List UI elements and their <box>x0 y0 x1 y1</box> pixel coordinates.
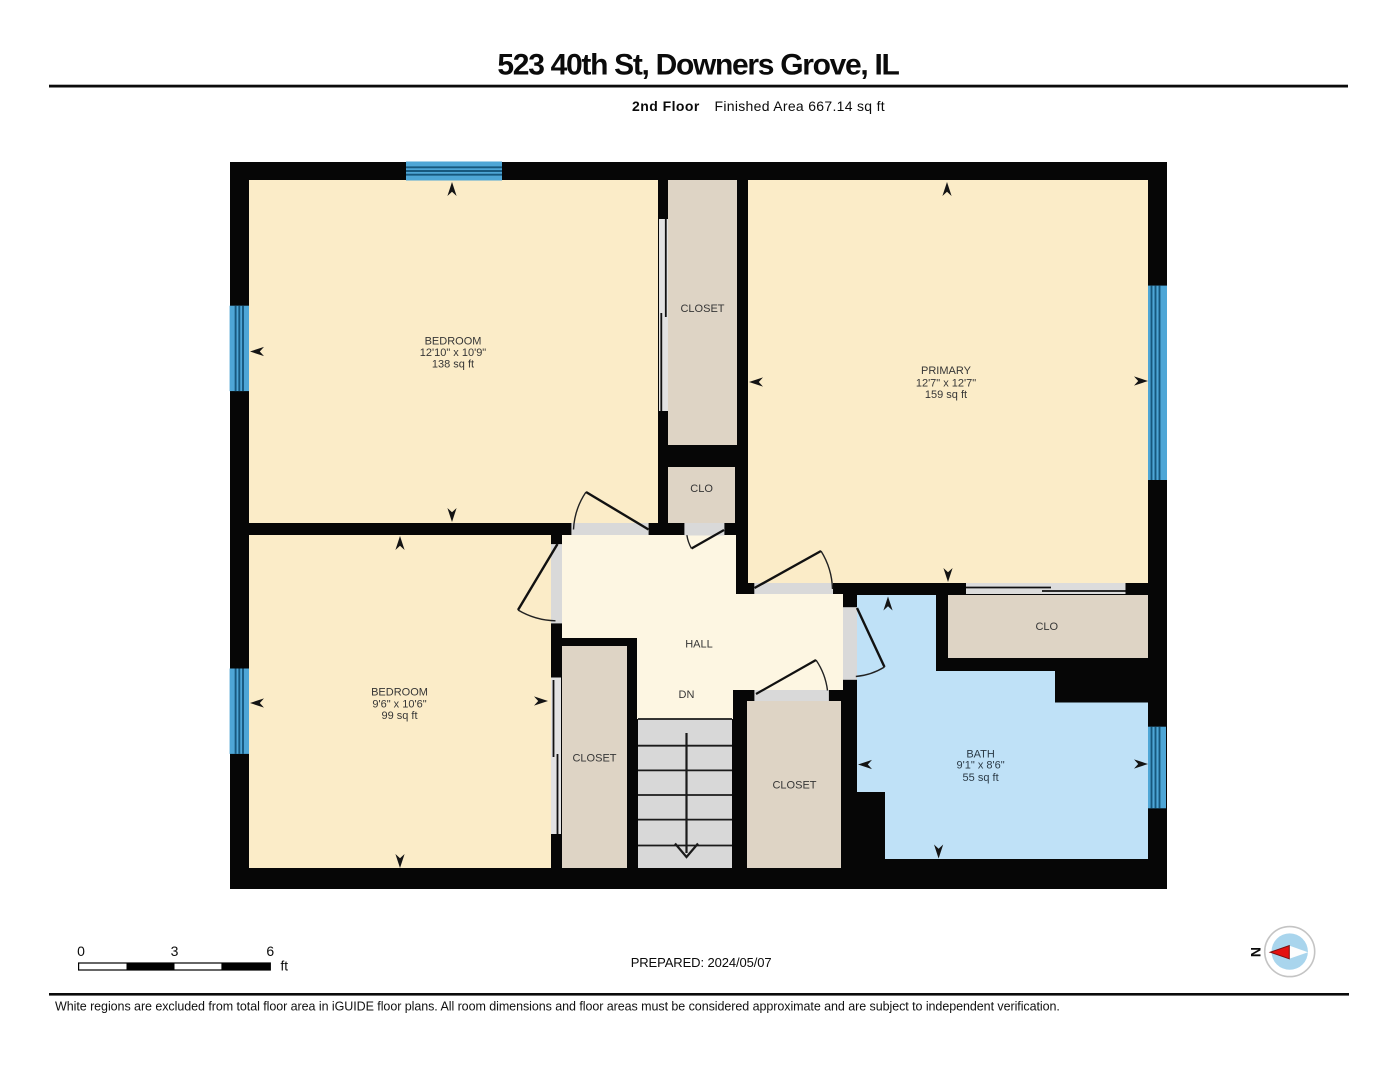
svg-text:9'1" x 8'6": 9'1" x 8'6" <box>957 760 1005 772</box>
svg-text:99 sq ft: 99 sq ft <box>381 710 417 722</box>
svg-text:BEDROOM: BEDROOM <box>425 335 482 347</box>
svg-text:55 sq ft: 55 sq ft <box>963 772 999 784</box>
svg-text:PRIMARY: PRIMARY <box>921 365 972 377</box>
svg-text:CLOSET: CLOSET <box>572 753 616 765</box>
svg-text:12'7" x 12'7": 12'7" x 12'7" <box>916 378 976 390</box>
svg-text:2nd Floor: 2nd Floor <box>632 98 700 114</box>
svg-text:PREPARED: 2024/05/07: PREPARED: 2024/05/07 <box>631 955 772 970</box>
svg-text:DN: DN <box>679 689 695 701</box>
svg-text:Finished Area 667.14 sq ft: Finished Area 667.14 sq ft <box>715 98 885 114</box>
svg-text:6: 6 <box>266 943 274 959</box>
svg-text:CLO: CLO <box>1035 621 1058 633</box>
svg-text:3: 3 <box>171 943 179 959</box>
svg-text:HALL: HALL <box>685 638 713 650</box>
svg-text:N: N <box>1248 947 1264 957</box>
svg-text:0: 0 <box>77 943 85 959</box>
svg-text:9'6" x 10'6": 9'6" x 10'6" <box>372 698 426 710</box>
svg-text:12'10" x 10'9": 12'10" x 10'9" <box>420 347 487 359</box>
svg-text:BEDROOM: BEDROOM <box>371 687 428 699</box>
svg-text:CLO: CLO <box>690 483 713 495</box>
svg-text:White regions are excluded fro: White regions are excluded from total fl… <box>55 1000 1060 1014</box>
svg-text:159 sq ft: 159 sq ft <box>925 389 967 401</box>
svg-text:523 40th St, Downers Grove, IL: 523 40th St, Downers Grove, IL <box>497 49 899 82</box>
svg-text:BATH: BATH <box>966 748 995 760</box>
svg-text:CLOSET: CLOSET <box>772 780 816 792</box>
svg-text:ft: ft <box>281 959 289 974</box>
svg-text:CLOSET: CLOSET <box>680 303 724 315</box>
svg-text:138 sq ft: 138 sq ft <box>432 359 474 371</box>
